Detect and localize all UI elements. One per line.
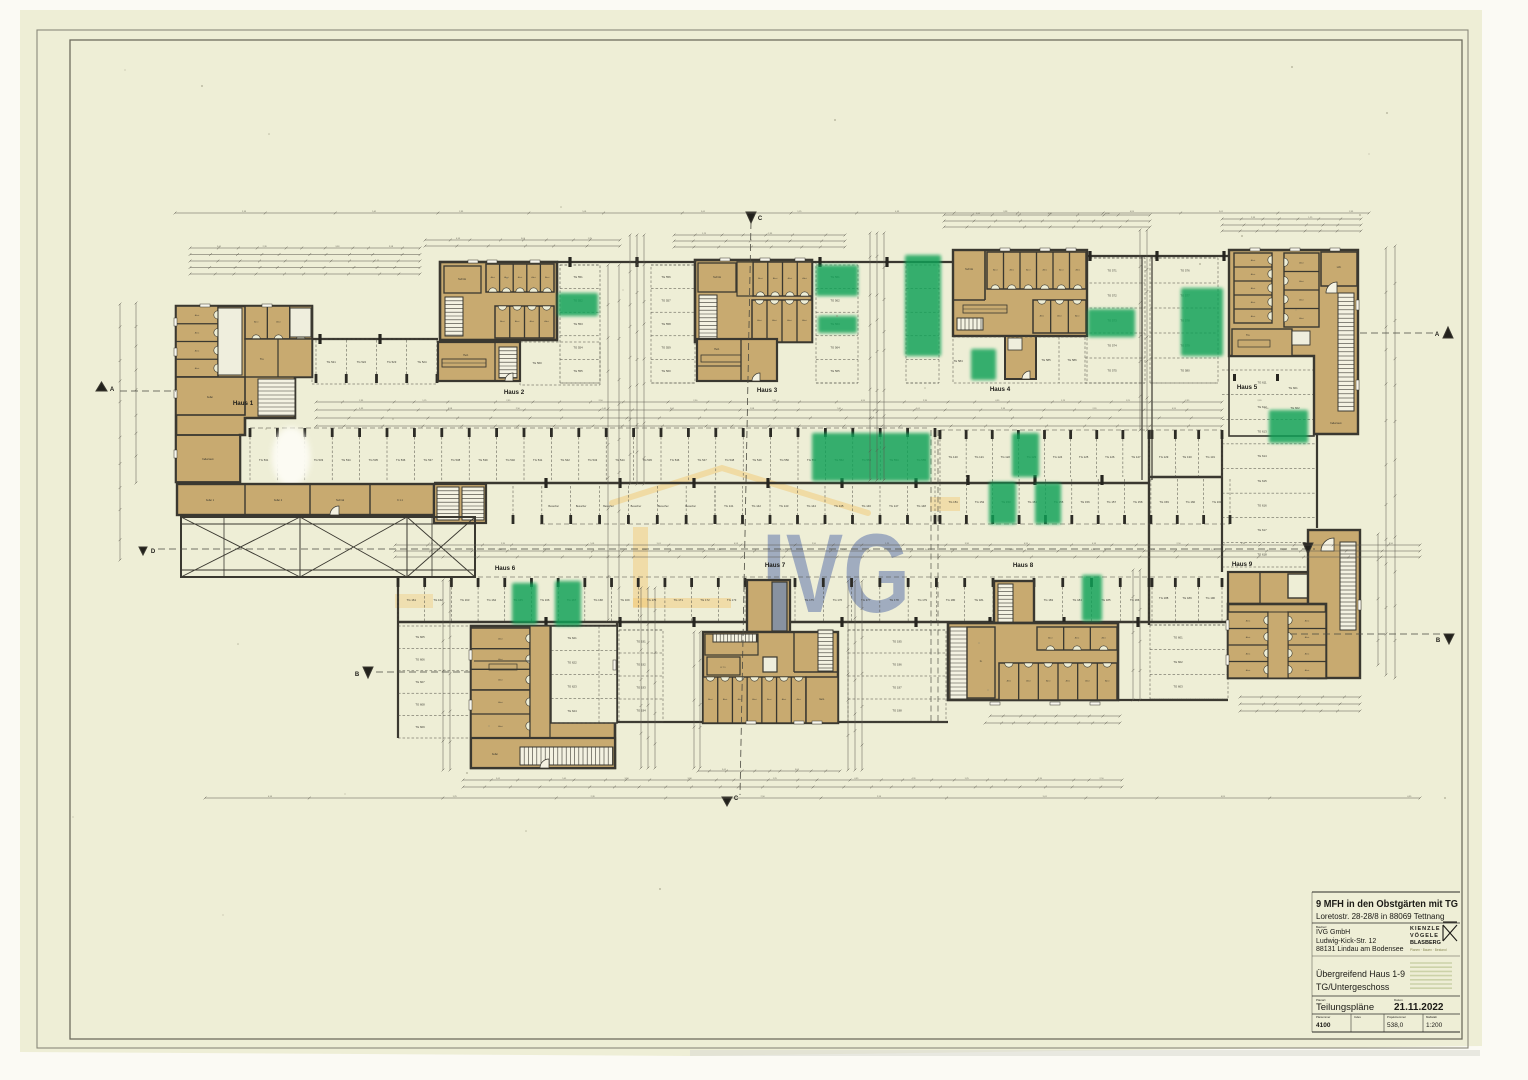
svg-text:A: A (110, 387, 115, 393)
svg-text:TG 181: TG 181 (974, 598, 984, 602)
svg-text:TG 554: TG 554 (573, 346, 583, 350)
svg-text:D: D (151, 549, 156, 555)
svg-text:TG 613: TG 613 (1257, 430, 1267, 434)
svg-text:TG 562: TG 562 (830, 298, 840, 302)
svg-text:K 7.1: K 7.1 (720, 667, 726, 669)
svg-text:Keller: Keller (207, 396, 213, 399)
svg-text:TG 173: TG 173 (727, 598, 737, 602)
svg-text:88131 Lindau am Bodensee: 88131 Lindau am Bodensee (1316, 946, 1404, 953)
svg-text:TG 586: TG 586 (1067, 358, 1077, 362)
svg-text:KIENZLE: KIENZLE (1410, 926, 1441, 932)
svg-text:Abst: Abst (498, 637, 503, 640)
svg-text:TG 584: TG 584 (953, 359, 963, 363)
svg-text:G.: G. (980, 660, 983, 663)
svg-text:Abst: Abst (1246, 636, 1251, 639)
svg-text:TG 602: TG 602 (1290, 406, 1300, 410)
svg-text:Abst: Abst (1246, 652, 1251, 655)
svg-text:TG 156: TG 156 (1080, 500, 1090, 504)
svg-text:VÖGELE: VÖGELE (1410, 932, 1439, 939)
svg-text:Abst: Abst (195, 349, 200, 352)
svg-text:TG 176: TG 176 (833, 598, 843, 602)
svg-text:TG 606: TG 606 (415, 658, 425, 662)
svg-text:TG 524: TG 524 (417, 360, 427, 364)
svg-text:Abst: Abst (1066, 680, 1071, 683)
svg-text:Abst: Abst (796, 698, 801, 701)
svg-text:Abst: Abst (1305, 636, 1310, 639)
svg-text:TG 124: TG 124 (1053, 455, 1063, 459)
svg-text:TG 555: TG 555 (573, 369, 583, 373)
svg-text:Haus 9: Haus 9 (1232, 561, 1253, 568)
svg-text:K 1.1: K 1.1 (397, 499, 403, 502)
svg-text:Lüft.: Lüft. (1337, 266, 1342, 269)
svg-text:TG 523: TG 523 (387, 360, 397, 364)
svg-text:TG 608: TG 608 (415, 702, 425, 706)
svg-text:TG 121: TG 121 (975, 455, 985, 459)
svg-text:Abst: Abst (752, 698, 757, 701)
svg-text:Teilungspläne: Teilungspläne (1316, 1002, 1374, 1013)
svg-text:Haus 7: Haus 7 (765, 562, 786, 569)
svg-text:TG 147: TG 147 (889, 504, 899, 508)
svg-text:TG 601: TG 601 (1173, 635, 1183, 639)
svg-text:TG 166: TG 166 (540, 598, 550, 602)
svg-text:Keller: Keller (492, 753, 498, 756)
svg-text:TG 180: TG 180 (946, 598, 956, 602)
svg-text:Haus 5: Haus 5 (1237, 384, 1258, 391)
svg-text:TG 564: TG 564 (830, 346, 840, 350)
svg-text:TG 196: TG 196 (892, 663, 902, 667)
svg-text:1:200: 1:200 (1426, 1022, 1443, 1029)
svg-text:TG 125: TG 125 (1079, 455, 1089, 459)
svg-text:Abst: Abst (195, 314, 200, 317)
svg-text:TG 576: TG 576 (1180, 269, 1190, 273)
svg-text:Abst: Abst (1299, 280, 1304, 283)
svg-text:Abst: Abst (531, 276, 536, 279)
svg-text:Besucher: Besucher (548, 505, 559, 508)
svg-text:Abst: Abst (498, 679, 503, 682)
svg-text:Technik: Technik (336, 499, 345, 502)
svg-text:TG 546: TG 546 (670, 458, 680, 462)
svg-text:TG 178: TG 178 (889, 598, 899, 602)
svg-text:TG 151: TG 151 (949, 500, 959, 504)
svg-text:Übergreifend Haus 1-9: Übergreifend Haus 1-9 (1316, 969, 1405, 979)
svg-text:Abst: Abst (500, 320, 505, 323)
svg-text:Abst: Abst (276, 321, 281, 324)
svg-text:TG 157: TG 157 (1107, 500, 1117, 504)
svg-text:TG 177: TG 177 (861, 598, 871, 602)
svg-text:TG 162: TG 162 (433, 598, 443, 602)
svg-text:TG 129: TG 129 (1159, 455, 1169, 459)
svg-text:TG 160: TG 160 (1186, 500, 1196, 504)
svg-text:TG 145: TG 145 (834, 504, 844, 508)
svg-text:Abst: Abst (773, 277, 778, 280)
svg-text:TG 195: TG 195 (892, 640, 902, 644)
svg-text:Abst: Abst (1026, 680, 1031, 683)
svg-text:Abst: Abst (518, 276, 523, 279)
svg-text:TG 533: TG 533 (314, 458, 324, 462)
svg-text:538,0: 538,0 (1387, 1022, 1404, 1029)
svg-text:Heiz.: Heiz. (714, 348, 720, 351)
svg-text:TG 161: TG 161 (407, 598, 417, 602)
svg-text:Abst: Abst (1040, 315, 1045, 318)
svg-text:TG 621: TG 621 (567, 636, 577, 640)
svg-text:Haus 2: Haus 2 (504, 389, 525, 396)
svg-text:TG 607: TG 607 (415, 680, 425, 684)
svg-text:TG 531: TG 531 (259, 458, 269, 462)
svg-text:Abst: Abst (498, 725, 503, 728)
svg-text:Abst: Abst (1251, 259, 1256, 262)
svg-text:TG 601: TG 601 (1288, 386, 1298, 390)
svg-text:TG 614: TG 614 (1257, 454, 1267, 458)
svg-text:TG 184: TG 184 (1072, 598, 1082, 602)
svg-text:TG 622: TG 622 (567, 660, 577, 664)
svg-text:TG 127: TG 127 (1131, 455, 1141, 459)
svg-text:TG/Untergeschoss: TG/Untergeschoss (1316, 982, 1390, 992)
svg-text:Abst: Abst (1057, 315, 1062, 318)
svg-text:TG 574: TG 574 (1107, 344, 1117, 348)
svg-text:TG 565: TG 565 (830, 369, 840, 373)
svg-text:Besucher: Besucher (576, 505, 587, 508)
svg-text:Abst: Abst (772, 319, 777, 322)
svg-text:TG 553: TG 553 (573, 322, 583, 326)
svg-text:TG 521: TG 521 (326, 360, 336, 364)
svg-text:TG 571: TG 571 (1107, 269, 1117, 273)
svg-text:Abst: Abst (1076, 269, 1081, 272)
svg-text:TG 548: TG 548 (725, 458, 735, 462)
svg-text:Abst: Abst (1046, 680, 1051, 683)
svg-text:TG 148: TG 148 (917, 504, 927, 508)
svg-text:Abst: Abst (530, 320, 535, 323)
svg-text:Loretostr. 28-28/8 in 88069 Te: Loretostr. 28-28/8 in 88069 Tettnang (1316, 912, 1444, 921)
svg-text:Technik: Technik (458, 279, 467, 281)
svg-text:TG 168: TG 168 (594, 598, 604, 602)
svg-text:TG 538: TG 538 (451, 458, 461, 462)
svg-text:TG 152: TG 152 (975, 500, 985, 504)
svg-text:Ludwig-Kick-Str. 12: Ludwig-Kick-Str. 12 (1316, 938, 1376, 945)
svg-text:TG 146: TG 146 (862, 504, 872, 508)
svg-text:Gem.: Gem. (819, 699, 825, 701)
svg-text:Abst: Abst (1246, 619, 1251, 622)
svg-text:TG 131: TG 131 (1206, 455, 1216, 459)
svg-text:TG 572: TG 572 (1107, 294, 1117, 298)
svg-text:Abst: Abst (708, 698, 713, 701)
svg-text:TG 547: TG 547 (697, 458, 707, 462)
svg-text:Abst: Abst (782, 698, 787, 701)
svg-text:Keller 2: Keller 2 (274, 499, 283, 502)
svg-text:TG 615: TG 615 (1257, 479, 1267, 483)
svg-text:Besucher: Besucher (631, 505, 642, 508)
svg-text:TG 175: TG 175 (804, 598, 814, 602)
svg-text:TG 602: TG 602 (1173, 660, 1183, 664)
svg-text:Abst: Abst (1085, 680, 1090, 683)
svg-text:Abst: Abst (1048, 637, 1053, 640)
svg-text:Keller 1: Keller 1 (206, 499, 215, 502)
svg-text:TG 557: TG 557 (661, 298, 671, 302)
svg-text:Abst: Abst (1059, 269, 1064, 272)
svg-text:Haus 1: Haus 1 (233, 400, 254, 407)
svg-text:TG 189: TG 189 (1182, 596, 1192, 600)
svg-text:TG 143: TG 143 (779, 504, 789, 508)
svg-text:Abst: Abst (195, 367, 200, 370)
svg-text:Tro.: Tro. (1246, 334, 1250, 337)
svg-text:TG 198: TG 198 (892, 709, 902, 713)
svg-text:Abst: Abst (788, 277, 793, 280)
svg-text:Abst: Abst (802, 277, 807, 280)
svg-text:Abst: Abst (723, 698, 728, 701)
svg-text:Besucher: Besucher (603, 505, 614, 508)
svg-text:Abst: Abst (1251, 273, 1256, 276)
svg-text:Abst: Abst (498, 701, 503, 704)
svg-text:Abst: Abst (1105, 680, 1110, 683)
svg-text:TG 172: TG 172 (700, 598, 710, 602)
svg-text:Abst: Abst (545, 276, 550, 279)
svg-text:TG 534: TG 534 (341, 458, 351, 462)
svg-text:Abst: Abst (993, 269, 998, 272)
svg-text:TG 179: TG 179 (918, 598, 928, 602)
svg-text:Abst: Abst (1299, 261, 1304, 264)
svg-text:Technik: Technik (965, 269, 974, 271)
svg-text:TG 141: TG 141 (724, 504, 734, 508)
svg-text:Abst: Abst (1251, 315, 1256, 318)
svg-text:Abst: Abst (254, 321, 259, 324)
svg-text:TG 537: TG 537 (423, 458, 433, 462)
svg-text:Haus 8: Haus 8 (1013, 562, 1034, 569)
svg-text:TG 559: TG 559 (661, 346, 671, 350)
svg-text:Projektnummer: Projektnummer (1387, 1015, 1406, 1019)
svg-text:TG 550: TG 550 (780, 458, 790, 462)
svg-text:Planummer: Planummer (1316, 1015, 1330, 1019)
svg-text:Planen · Bauen · Bestand: Planen · Bauen · Bestand (1410, 948, 1447, 952)
svg-text:TG 164: TG 164 (487, 598, 497, 602)
svg-text:TG 605: TG 605 (415, 635, 425, 639)
svg-text:Abst: Abst (757, 319, 762, 322)
svg-text:Abst: Abst (1299, 298, 1304, 301)
svg-text:TG 558: TG 558 (661, 322, 671, 326)
svg-text:Abst: Abst (1305, 669, 1310, 672)
svg-text:Abst: Abst (544, 320, 549, 323)
svg-text:TG 623: TG 623 (567, 685, 577, 689)
svg-text:4100: 4100 (1316, 1022, 1331, 1029)
svg-text:TG 618: TG 618 (1257, 553, 1267, 557)
svg-text:Technik: Technik (713, 277, 722, 279)
svg-text:TG 551: TG 551 (573, 275, 583, 279)
svg-text:Abst: Abst (787, 319, 792, 322)
svg-text:TG 183: TG 183 (1044, 598, 1054, 602)
svg-text:TG 556: TG 556 (661, 275, 671, 279)
svg-text:Maßstab: Maßstab (1426, 1015, 1437, 1019)
svg-text:TG 536: TG 536 (396, 458, 406, 462)
svg-text:TG 543: TG 543 (588, 458, 598, 462)
svg-text:TG 539: TG 539 (478, 458, 488, 462)
svg-text:TG 186: TG 186 (1130, 598, 1140, 602)
svg-text:TG 190: TG 190 (1206, 596, 1216, 600)
svg-text:TG 585: TG 585 (1041, 358, 1051, 362)
svg-text:TG 142: TG 142 (752, 504, 762, 508)
svg-text:Abst: Abst (1251, 301, 1256, 304)
svg-text:TG 542: TG 542 (560, 458, 570, 462)
svg-text:TG 130: TG 130 (1182, 455, 1192, 459)
svg-text:TG 544: TG 544 (615, 458, 625, 462)
svg-text:Tro.: Tro. (260, 358, 264, 361)
svg-text:TG 603: TG 603 (1173, 685, 1183, 689)
svg-text:Kellerraum: Kellerraum (202, 458, 214, 461)
svg-text:Abst: Abst (1101, 637, 1106, 640)
svg-text:Abst: Abst (491, 276, 496, 279)
svg-text:9 MFH in den Obstgärten mit TG: 9 MFH in den Obstgärten mit TG (1316, 899, 1458, 910)
svg-text:TG 624: TG 624 (567, 709, 577, 713)
svg-text:Abst: Abst (195, 332, 200, 335)
svg-text:TG 575: TG 575 (1107, 369, 1117, 373)
svg-text:Haus 3: Haus 3 (757, 387, 778, 394)
svg-text:Abst: Abst (802, 319, 807, 322)
svg-text:TG 540: TG 540 (506, 458, 516, 462)
svg-text:B: B (1436, 638, 1441, 644)
svg-text:Haus 6: Haus 6 (495, 565, 516, 572)
svg-text:Haus 4: Haus 4 (990, 386, 1011, 393)
svg-text:TG 171: TG 171 (674, 598, 684, 602)
svg-text:Abst: Abst (1246, 669, 1251, 672)
svg-text:Kellerraum: Kellerraum (1330, 422, 1342, 425)
svg-text:TG 616: TG 616 (1257, 503, 1267, 507)
svg-text:TG 560: TG 560 (532, 361, 542, 365)
svg-text:C: C (734, 796, 739, 802)
svg-text:Abst: Abst (1026, 269, 1031, 272)
svg-text:TG 159: TG 159 (1159, 500, 1169, 504)
svg-text:Heiz.: Heiz. (463, 354, 469, 357)
svg-text:Abst: Abst (1305, 652, 1310, 655)
svg-text:TG 580: TG 580 (1180, 369, 1190, 373)
svg-text:TG 541: TG 541 (533, 458, 543, 462)
svg-text:TG 169: TG 169 (620, 598, 630, 602)
svg-text:TG 611: TG 611 (1257, 380, 1267, 384)
svg-text:Abst: Abst (1075, 637, 1080, 640)
svg-text:A: A (1435, 332, 1440, 338)
svg-text:TG 549: TG 549 (752, 458, 762, 462)
svg-text:Besucher: Besucher (658, 505, 669, 508)
svg-text:TG 158: TG 158 (1133, 500, 1143, 504)
svg-text:TG 120: TG 120 (948, 455, 958, 459)
svg-text:TG 163: TG 163 (460, 598, 470, 602)
svg-text:Abst: Abst (1007, 680, 1012, 683)
svg-text:Abst: Abst (1251, 287, 1256, 290)
svg-text:C: C (758, 216, 763, 222)
svg-text:BLASBERG: BLASBERG (1410, 940, 1441, 946)
svg-text:TG 188: TG 188 (1159, 596, 1169, 600)
svg-text:21.11.2022: 21.11.2022 (1394, 1002, 1444, 1013)
svg-text:TG 617: TG 617 (1257, 528, 1267, 532)
svg-text:TG 185: TG 185 (1101, 598, 1111, 602)
svg-text:TG 144: TG 144 (807, 504, 817, 508)
svg-text:Abst: Abst (1305, 619, 1310, 622)
svg-text:TG 161: TG 161 (1212, 500, 1222, 504)
svg-text:Abst: Abst (1299, 317, 1304, 320)
svg-text:TG 197: TG 197 (892, 686, 902, 690)
svg-text:TG 535: TG 535 (369, 458, 379, 462)
svg-text:Abst: Abst (1043, 269, 1048, 272)
svg-text:TG 522: TG 522 (357, 360, 367, 364)
svg-text:Abst: Abst (1010, 269, 1015, 272)
svg-text:Abst: Abst (758, 277, 763, 280)
svg-text:Abst: Abst (767, 698, 772, 701)
svg-text:Abst: Abst (1075, 315, 1080, 318)
svg-text:TG 560: TG 560 (661, 369, 671, 373)
svg-text:Index: Index (1354, 1015, 1361, 1019)
svg-text:TG 126: TG 126 (1105, 455, 1115, 459)
svg-text:TG 609: TG 609 (415, 725, 425, 729)
svg-text:TG 122: TG 122 (1001, 455, 1011, 459)
svg-text:IVG GmbH: IVG GmbH (1316, 929, 1350, 936)
svg-text:Besucher: Besucher (685, 505, 696, 508)
svg-text:B: B (355, 672, 360, 678)
svg-text:Abst: Abst (515, 320, 520, 323)
